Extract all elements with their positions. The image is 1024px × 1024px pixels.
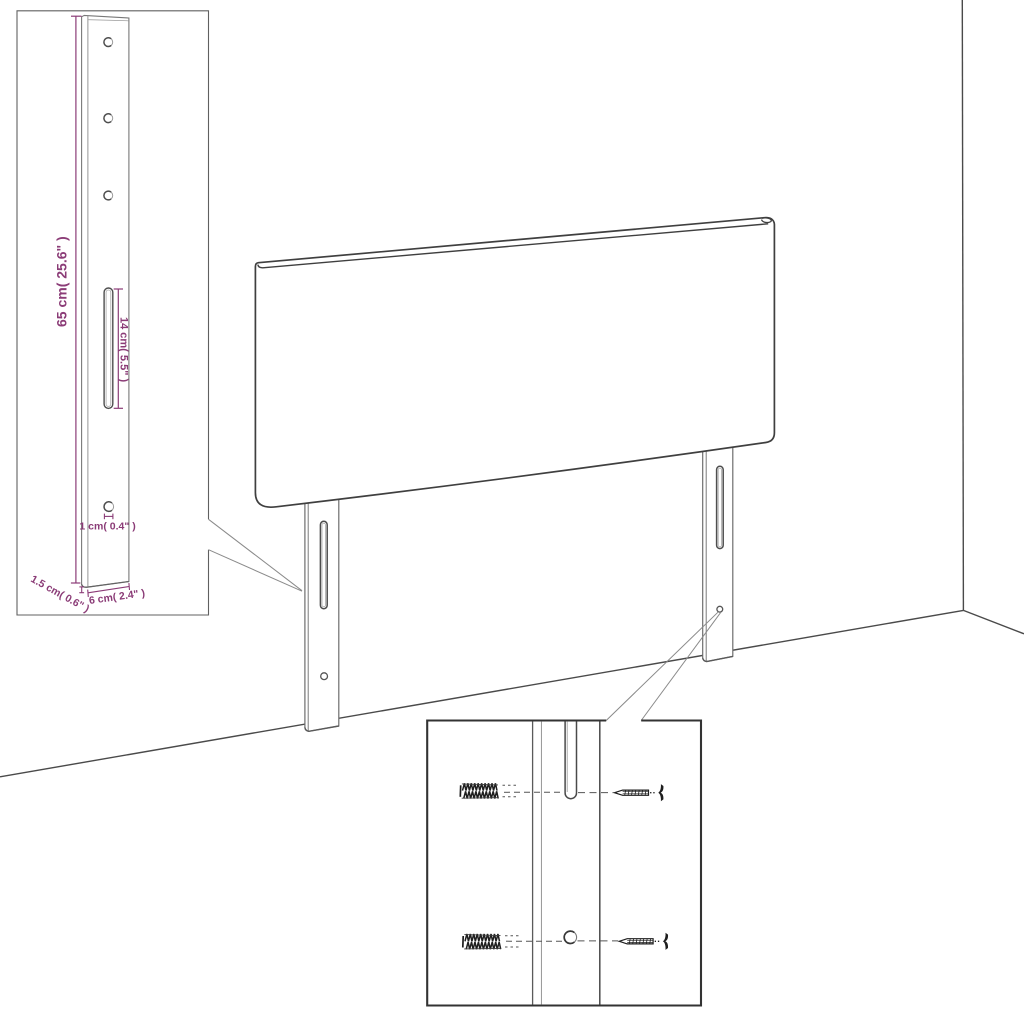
svg-text:1 cm( 0.4" ): 1 cm( 0.4" ) (79, 521, 135, 533)
svg-text:14 cm( 5.5" ): 14 cm( 5.5" ) (117, 317, 129, 382)
svg-text:65 cm( 25.6" ): 65 cm( 25.6" ) (54, 236, 70, 327)
